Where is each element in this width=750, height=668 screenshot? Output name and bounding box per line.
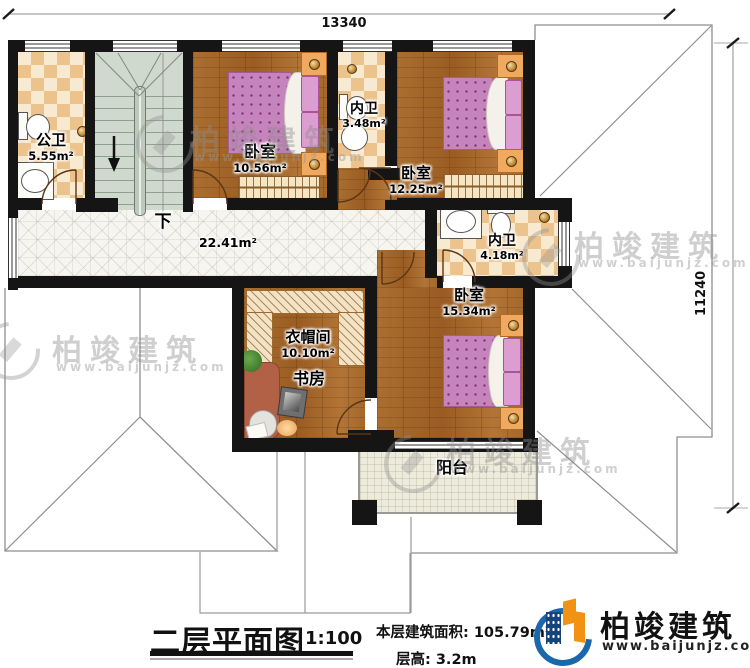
room-label-cloakroom: 衣帽间10.10m²: [270, 329, 346, 360]
floor-plan-canvas: 公卫5.55m² 卧室10.56m² 内卫3.48m² 卧室12.25m² 内卫…: [0, 0, 750, 668]
plan-scale: 1:100: [305, 628, 362, 649]
stair-arrow-head: [108, 158, 120, 172]
room-label-bedroom-big: 卧室15.34m²: [434, 287, 504, 318]
title-underline: [150, 651, 353, 656]
room-label-hallway-area: 22.41m²: [198, 236, 258, 251]
stairs-down-label: 下: [151, 212, 175, 232]
room-label-study: 书房: [283, 370, 335, 389]
floor-height-note: 层高: 3.2m: [396, 648, 477, 668]
floor-area-note: 本层建筑面积: 105.79m²: [376, 621, 551, 642]
title-underline-shadow: [150, 658, 353, 660]
brand-logo-url: www.baijunjz.com: [602, 639, 750, 654]
room-label-public-bath: 公卫5.55m²: [16, 132, 86, 163]
brand-logo-icon: [532, 596, 598, 662]
room-label-bedroom-mid: 卧室12.25m²: [378, 165, 454, 196]
room-label-bath-inner-a: 内卫3.48m²: [336, 101, 392, 130]
dimension-top-value: 13340: [316, 16, 372, 31]
door-arcs: [42, 168, 475, 434]
